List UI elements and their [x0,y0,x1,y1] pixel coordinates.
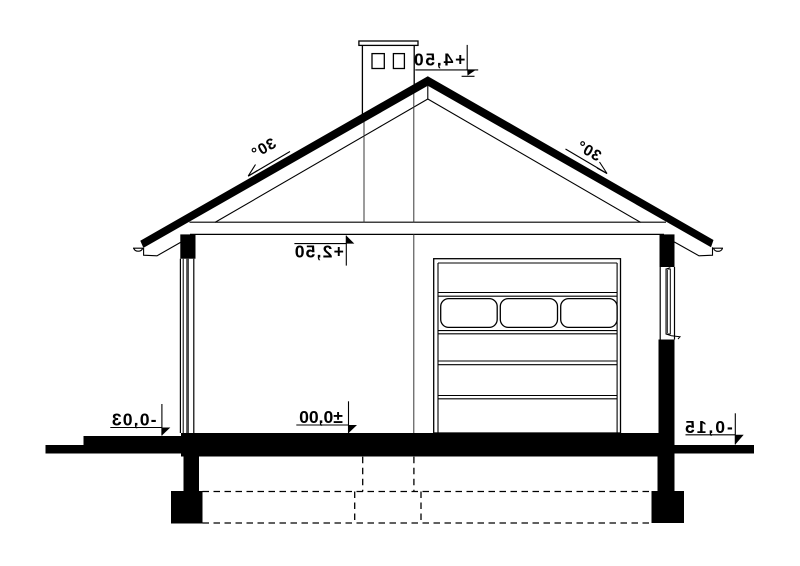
svg-text:±0,00: ±0,00 [299,407,343,427]
svg-text:+2,50: +2,50 [294,242,344,262]
svg-text:-0,03: -0,03 [111,410,157,430]
svg-text:+4,50: +4,50 [412,50,465,70]
svg-text:-0,15: -0,15 [683,417,732,437]
